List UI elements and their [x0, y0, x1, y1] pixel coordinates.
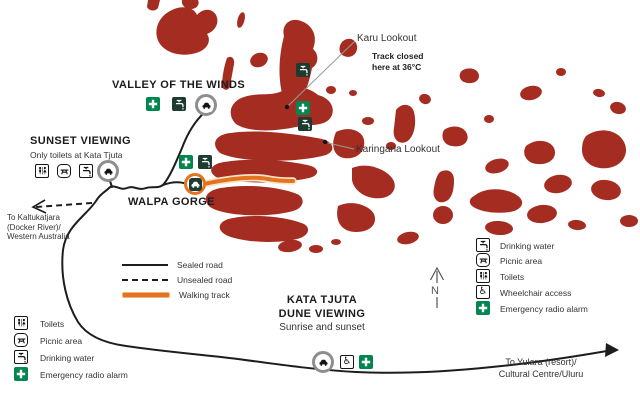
- emergency-radio-alarm-icon: [476, 301, 490, 315]
- karu-lookout-label: Karu Lookout: [357, 33, 417, 44]
- picnic-area-icon: [14, 333, 28, 347]
- legend-row-unsealed-road: Unsealed road: [122, 272, 232, 287]
- unsealed-road-swatch: [122, 279, 168, 281]
- drinking-water-icon: [476, 238, 490, 252]
- wheelchair-access-icon: ♿: [340, 355, 354, 369]
- wheelchair-access-icon: ♿: [476, 285, 490, 299]
- emergency-radio-alarm-icon: [296, 101, 310, 115]
- legend-label: Unsealed road: [177, 275, 232, 285]
- legend-row-walking-track: Walking track: [122, 287, 230, 302]
- toilets-icon: [476, 269, 490, 283]
- walpa-carpark-marker: [184, 173, 206, 195]
- legend-label: Emergency radio alarm: [500, 304, 588, 314]
- sunset-viewing-title: SUNSET VIEWING: [30, 135, 131, 147]
- drinking-water-icon: [296, 63, 310, 77]
- toilets-icon: [35, 164, 49, 178]
- picnic-area-icon: [476, 253, 490, 267]
- walpa-gorge-label: WALPA GORGE: [128, 196, 215, 208]
- west-sign-line2: (Docker River)/: [7, 223, 61, 233]
- drinking-water-icon: [198, 155, 212, 169]
- valley-of-the-winds-label: VALLEY OF THE WINDS: [112, 79, 245, 91]
- sunset-viewing-subtitle: Only toilets at Kata Tjuta: [30, 150, 122, 160]
- legend-label: Emergency radio alarm: [40, 370, 128, 380]
- west-sign-line1: To Kaltukatjara: [7, 213, 60, 223]
- karu-lookout-dot: [285, 105, 289, 109]
- walpa-walking-track: [204, 178, 293, 184]
- picnic-area-icon: [57, 164, 71, 178]
- dune-viewing-line3: Sunrise and sunset: [242, 322, 402, 333]
- legend-row-sealed-road: Sealed road: [122, 257, 223, 272]
- map-canvas: [0, 0, 640, 400]
- toilets-icon: [14, 316, 28, 330]
- drinking-water-icon: [14, 350, 28, 364]
- sunset-carpark-marker: [97, 160, 119, 182]
- dune-carpark-marker: [312, 351, 334, 373]
- drinking-water-icon: [172, 97, 186, 111]
- dune-viewing-line1: KATA TJUTA: [242, 294, 402, 306]
- dune-viewing-line2: DUNE VIEWING: [242, 308, 402, 320]
- emergency-radio-alarm-icon: [14, 367, 28, 381]
- east-sign-line1: To Yulara (resort)/: [477, 357, 605, 367]
- east-road-arrowhead: [605, 343, 619, 357]
- drinking-water-icon: [298, 117, 312, 131]
- car-icon: [200, 99, 213, 112]
- north-label: N: [431, 285, 439, 297]
- kata-tjuta-map: VALLEY OF THE WINDS SUNSET VIEWING Only …: [0, 0, 640, 400]
- valley-carpark-marker: [195, 94, 217, 116]
- legend-label: Drinking water: [500, 241, 554, 251]
- car-icon: [189, 178, 202, 191]
- emergency-radio-alarm-icon: [146, 97, 160, 111]
- east-sign-line2: Cultural Centre/Uluru: [477, 369, 605, 379]
- legend-label: Picnic area: [500, 256, 542, 266]
- car-icon: [102, 165, 115, 178]
- legend-label: Sealed road: [177, 260, 223, 270]
- car-icon: [317, 356, 330, 369]
- emergency-radio-alarm-icon: [179, 155, 193, 169]
- karingana-lookout-dot: [323, 140, 327, 144]
- karingana-lookout-label: Karingana Lookout: [356, 144, 440, 155]
- emergency-radio-alarm-icon: [359, 355, 373, 369]
- legend-label: Toilets: [500, 272, 524, 282]
- drinking-water-icon: [79, 164, 93, 178]
- sealed-road-swatch: [122, 264, 168, 266]
- legend-label: Wheelchair access: [500, 288, 571, 298]
- legend-label: Walking track: [179, 290, 230, 300]
- legend-label: Picnic area: [40, 336, 82, 346]
- west-sign-line3: Western Australia: [7, 232, 70, 242]
- unsealed-road-west: [33, 200, 92, 213]
- legend-label: Toilets: [40, 319, 64, 329]
- legend-label: Drinking water: [40, 353, 94, 363]
- track-closed-warning-line2: here at 36°C: [372, 62, 421, 73]
- track-closed-warning-line1: Track closed: [372, 51, 424, 62]
- walking-track-swatch: [122, 292, 170, 298]
